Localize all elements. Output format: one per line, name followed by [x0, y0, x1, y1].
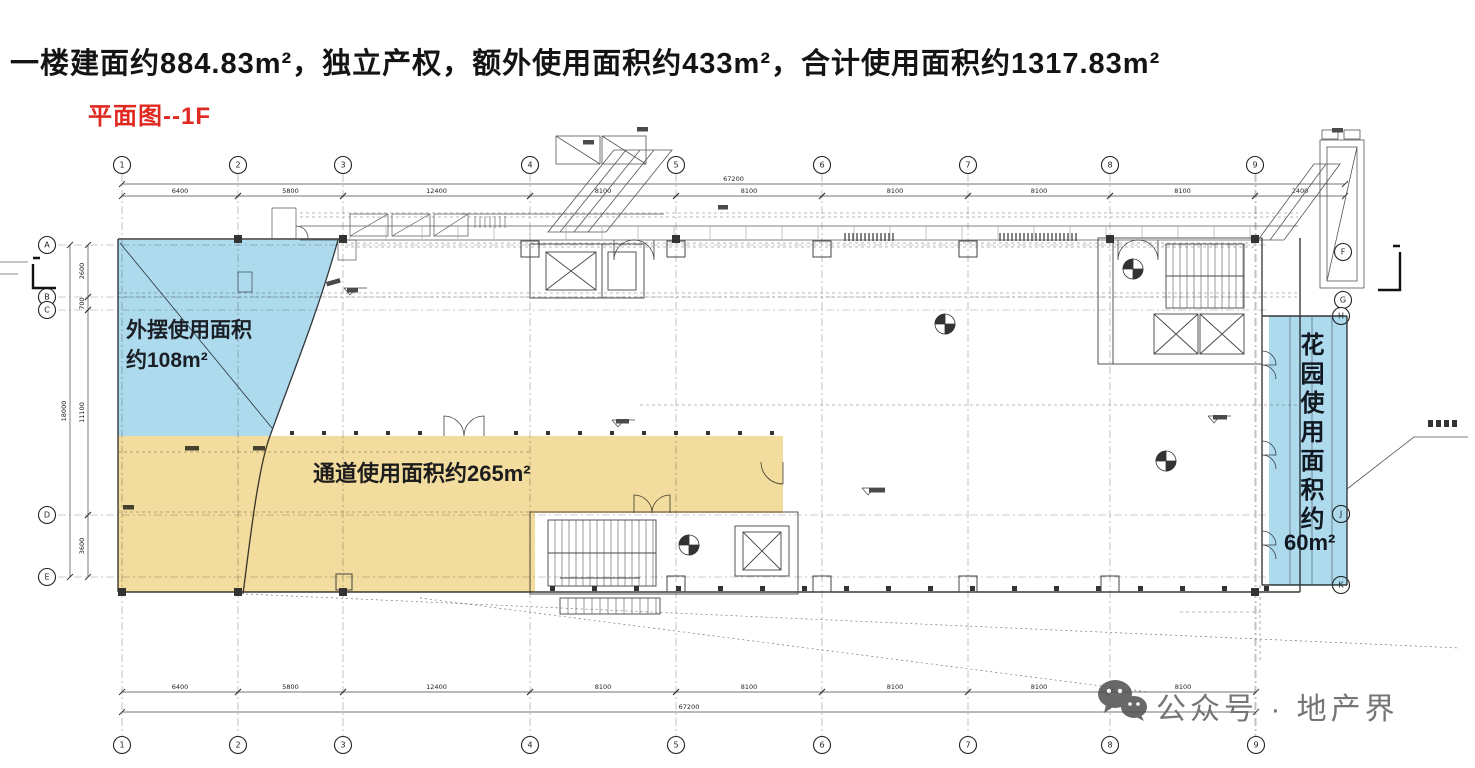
stair-core-bottom [530, 512, 798, 614]
edge-stub-lines [0, 262, 28, 274]
outdoor-seating-label-line2: 约108m² [126, 346, 252, 376]
page-title: 一楼建面约884.83m²，独立产权，额外使用面积约433m²，合计使用面积约1… [10, 40, 1160, 82]
wechat-icon [1096, 678, 1152, 724]
garden-area-value: 60m² [1284, 530, 1335, 556]
watermark-text: 公众号 · 地产界 [1156, 684, 1399, 728]
illegible-note [1428, 420, 1457, 427]
plan-label: 平面图--1F [88, 96, 211, 131]
outdoor-seating-label: 外摆使用面积 约108m² [126, 316, 252, 376]
outdoor-seating-label-line1: 外摆使用面积 [126, 316, 252, 346]
garden-leader-note [1347, 420, 1468, 489]
dotted-diagonals [246, 594, 1460, 692]
ramp-top-right [1258, 130, 1364, 288]
elevator-core-top [530, 244, 644, 298]
passage-label: 通道使用面积约265m² [313, 456, 531, 488]
floorplan-page: 6400580012400810081008100810081002400672… [0, 0, 1475, 768]
exterior-ramp-structure [548, 136, 672, 232]
top-facade-band [238, 208, 1298, 292]
floorplan-drawing [0, 0, 1475, 768]
garden-label-vertical: 花园使用面积约 [1292, 332, 1327, 535]
